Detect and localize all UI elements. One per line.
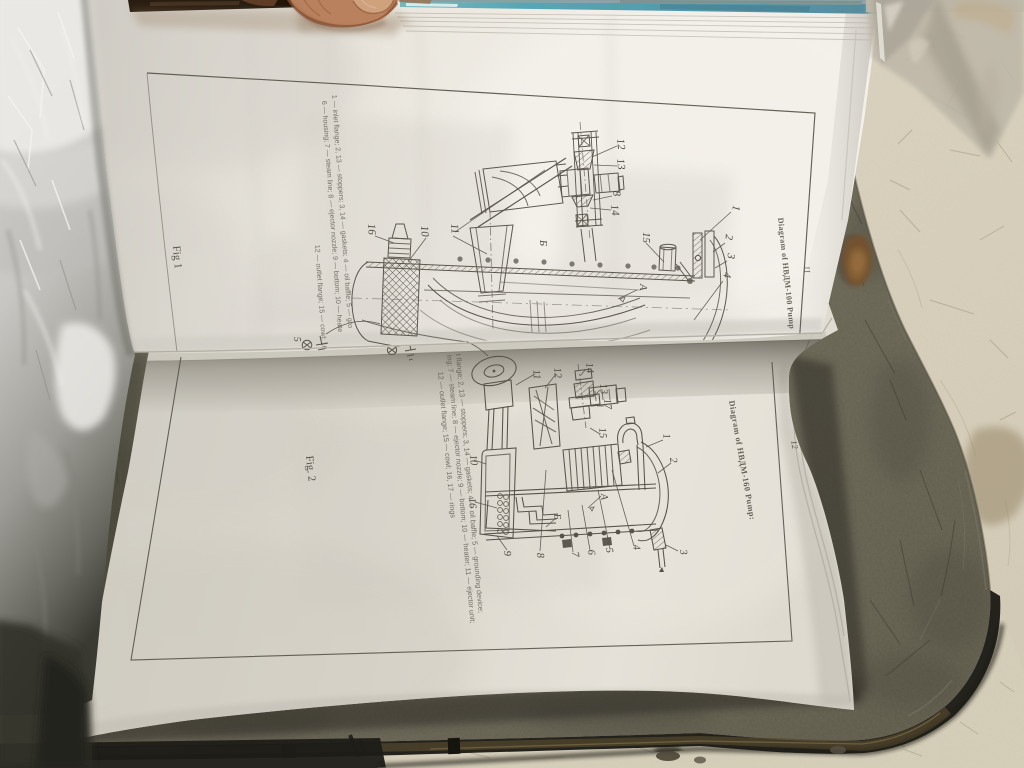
svg-text:11: 11 — [448, 223, 461, 234]
svg-text:16: 16 — [365, 223, 378, 235]
svg-text:Fig 1: Fig 1 — [170, 245, 184, 269]
svg-text:A: A — [637, 283, 648, 291]
svg-text:11: 11 — [802, 265, 813, 274]
svg-text:14: 14 — [583, 362, 595, 374]
svg-text:12: 12 — [551, 367, 563, 379]
svg-text:10: 10 — [418, 225, 431, 237]
svg-text:Б: Б — [537, 239, 548, 247]
svg-text:13: 13 — [597, 383, 609, 395]
svg-text:12: 12 — [614, 138, 627, 151]
svg-text:15: 15 — [640, 232, 652, 244]
svg-text:Б: Б — [551, 512, 563, 520]
svg-text:13: 13 — [614, 158, 627, 171]
svg-text:14: 14 — [608, 204, 621, 217]
svg-text:11: 11 — [530, 369, 542, 380]
svg-text:17: 17 — [601, 398, 613, 410]
svg-text:15: 15 — [596, 427, 608, 439]
svg-text:5: 5 — [291, 336, 302, 342]
